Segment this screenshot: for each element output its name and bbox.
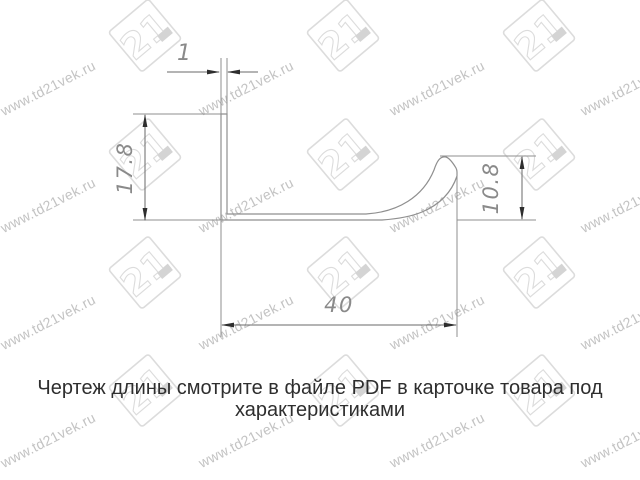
dim-wall-thickness-label: 1 xyxy=(177,41,193,66)
note-line-1: Чертеж длины смотрите в файле PDF в карт… xyxy=(0,377,640,399)
dim-left-height-label: 17.8 xyxy=(113,142,137,195)
note-text: Чертеж длины смотрите в файле PDF в карт… xyxy=(0,377,640,421)
dim-bottom-width-label: 40 xyxy=(324,293,354,317)
arrow-40-left xyxy=(221,323,234,328)
dim-right-height-label: 10.8 xyxy=(479,162,503,215)
drawing-canvas: www.td21vek.ruwww.td21vek.ruwww.td21vek.… xyxy=(0,0,640,480)
arrow-10-8-bottom xyxy=(520,207,525,220)
dimension-lines xyxy=(145,72,522,325)
arrow-17-8-top xyxy=(143,114,148,127)
arrow-40-right xyxy=(444,323,457,328)
arrow-10-8-top xyxy=(520,156,525,169)
dimension-arrows xyxy=(143,70,525,328)
note-line-2: характеристиками xyxy=(0,399,640,421)
arrow-1-left xyxy=(207,70,220,75)
profile-outline xyxy=(221,114,457,220)
arrow-17-8-bottom xyxy=(143,208,148,221)
arrow-1-right xyxy=(227,70,240,75)
